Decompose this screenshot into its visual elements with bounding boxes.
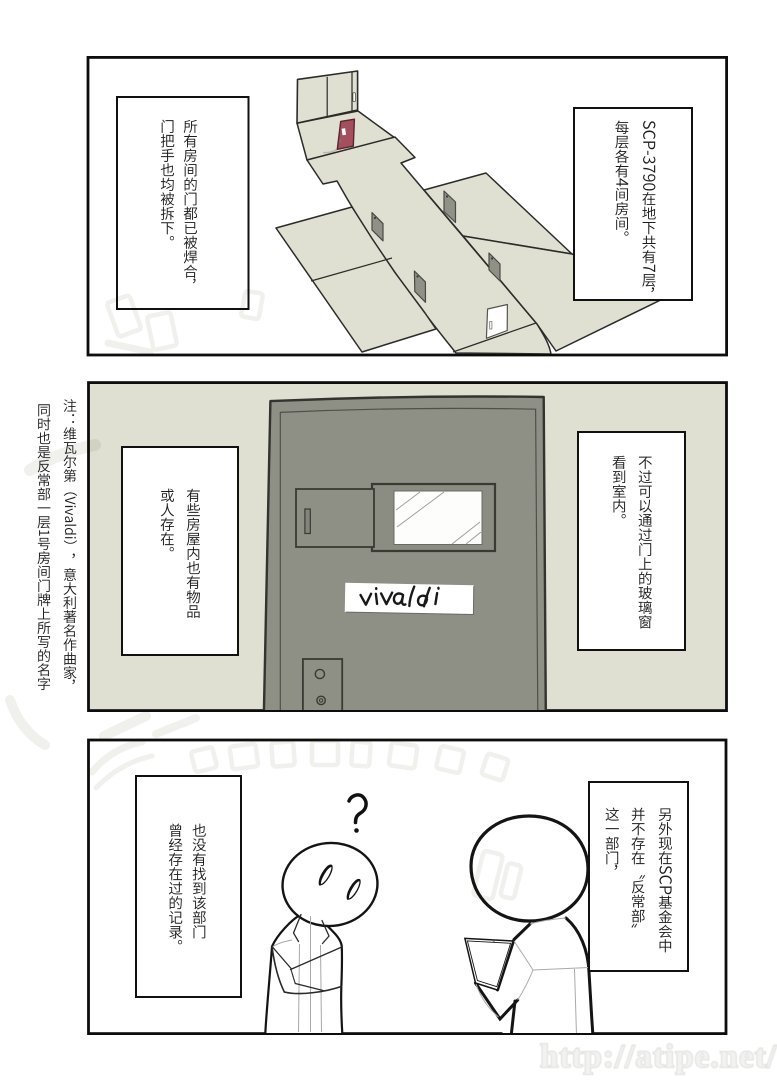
svg-text:http://atipe.net/: http://atipe.net/ — [540, 1039, 777, 1075]
